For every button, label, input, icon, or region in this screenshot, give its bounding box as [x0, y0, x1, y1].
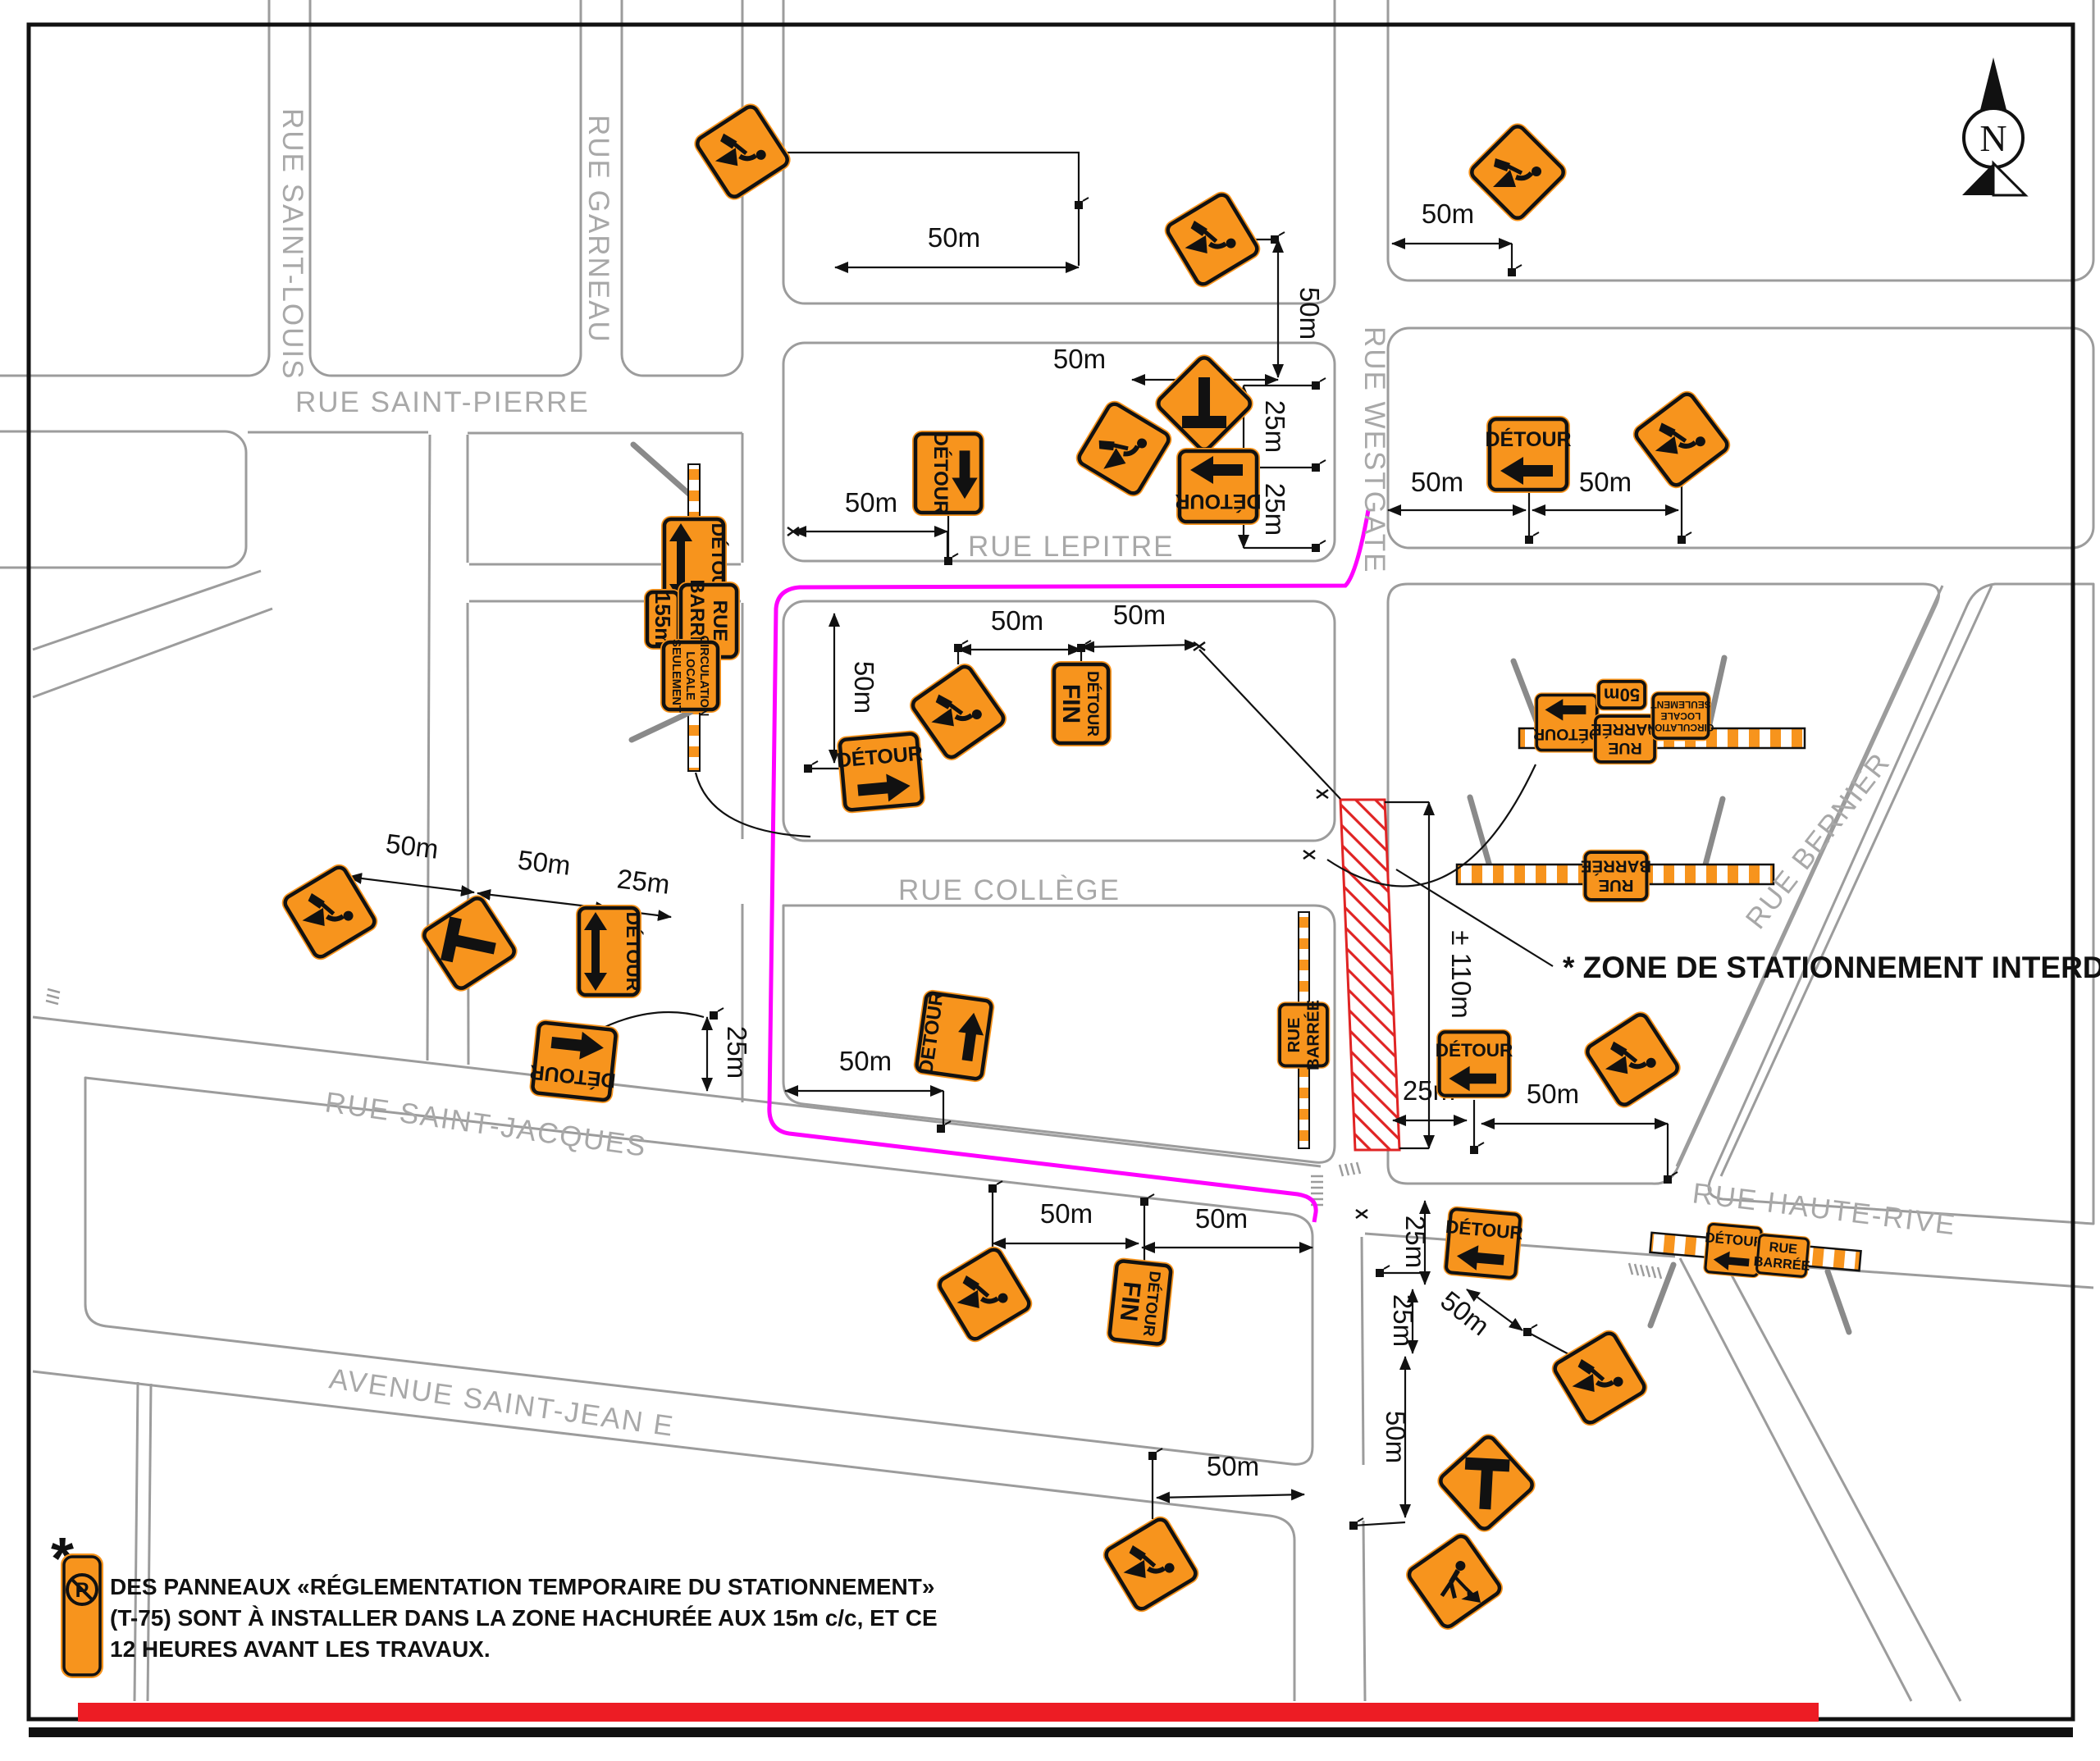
sign-digger [1622, 380, 1742, 500]
sign-label: DÉTOUR [623, 912, 645, 992]
sign-digger [1569, 997, 1696, 1123]
dimension-label: 25m [615, 863, 671, 900]
sign-label: LOCALE [1661, 710, 1701, 722]
dimension-label: 50m [1411, 467, 1463, 497]
sign-label: FIN [1115, 1280, 1146, 1323]
north-arrow-left-icon [1962, 163, 1993, 195]
dimension-label: 50m [839, 1046, 892, 1076]
sign-detour-down: DÉTOUR [912, 431, 984, 516]
north-arrow-right-icon [1993, 163, 2025, 195]
footer-black-bar [29, 1727, 2073, 1737]
street-edge [33, 571, 272, 697]
sign-label: BARRÉE [1581, 856, 1651, 875]
dimension: 50m [1142, 1203, 1312, 1248]
dimension-label: 50m [384, 828, 440, 865]
no-parking-zone-label: * ZONE DE STATIONNEMENT INTERDIT [1563, 951, 2100, 984]
legend: * P DES PANNEAUX «RÉGLEMENTATION TEMPORA… [51, 1526, 938, 1678]
sign-post-marker [1525, 532, 1539, 544]
dimension: 25m [1400, 1201, 1431, 1284]
survey-x-marker [1356, 1210, 1367, 1218]
street-label-saint-louis: RUE SAINT-LOUIS [276, 108, 308, 380]
barricade-brace [1705, 799, 1723, 868]
sign-rue-barree: RUEBARRÉE [1752, 1232, 1812, 1279]
sign-label: BARRÉE [1304, 1000, 1323, 1070]
dimension: 50m [1081, 600, 1198, 647]
sign-post-marker [1140, 1194, 1154, 1206]
sign-post-marker [1075, 198, 1089, 209]
dimension-label: 50m [991, 605, 1043, 636]
sign-digger [920, 1230, 1049, 1359]
sign-detour-fin: DÉTOURFIN [1051, 661, 1112, 746]
sign-tee [406, 880, 532, 1006]
sign-label: RUE [709, 600, 731, 642]
dimension: 50m [1157, 1451, 1304, 1498]
city-block [0, 431, 246, 568]
survey-x-marker [1317, 790, 1328, 798]
dimension: 50m [958, 605, 1081, 650]
no-parking-hatched-zone [1340, 800, 1399, 1150]
dimension-label: 25m [1260, 483, 1290, 536]
sign-circulation: CIRCULATIONLOCALESEULEMENT [660, 636, 721, 717]
dimension: 50m [477, 844, 609, 909]
diamond-plate [1402, 1529, 1507, 1634]
street-label-westgate: RUE WESTGATE [1358, 326, 1390, 573]
sign-label: LOCALE [683, 651, 696, 700]
sign-rue-barree: RUEBARRÉE [1581, 850, 1651, 903]
street-label-college: RUE COLLÈGE [898, 874, 1121, 906]
dimension: 50m [1053, 344, 1278, 380]
sign-label: DÉTOUR [1485, 427, 1571, 451]
legend-text-line3: 12 HEURES AVANT LES TRAVAUX. [110, 1636, 491, 1662]
sign-post-marker [1349, 1518, 1363, 1530]
sign-rue-barree: RUEBARRÉE [1277, 1000, 1331, 1070]
survey-x-marker [1303, 851, 1315, 859]
street-label-lepitre: RUE LEPITRE [968, 531, 1175, 563]
sign-digger [679, 89, 806, 215]
crosswalk-ticks [46, 989, 60, 1004]
sign-post-marker [1508, 265, 1522, 276]
sign-post-marker [1470, 1143, 1484, 1154]
sign-post-marker [944, 554, 958, 565]
street-label-bernier: RUE BERNIER [1740, 746, 1897, 935]
north-arrow: N [1962, 57, 2025, 195]
sign-post-marker [804, 761, 818, 773]
sign-label: DÉTOUR [1436, 1040, 1513, 1061]
sign-detour-up: DÉTOUR [912, 988, 996, 1083]
sign-digger [265, 847, 395, 977]
barricade-brace [633, 445, 691, 495]
crosswalk-ticks [1340, 1162, 1360, 1176]
sign-digger [1086, 1499, 1216, 1629]
sign-label: FIN [1057, 684, 1084, 723]
dimension-label: 50m [1435, 1285, 1495, 1342]
sign-dist: 50m [1596, 678, 1648, 710]
sign-post-marker [1523, 1325, 1537, 1336]
dimension: 50m [349, 828, 474, 892]
dimension: 50m [993, 1198, 1139, 1243]
dimension-label: 50m [1294, 287, 1325, 340]
detour-route-line [769, 510, 1368, 1222]
dimension-label: 50m [845, 487, 897, 518]
dimension: 50m [835, 222, 1079, 267]
sign-label: RUE [1608, 739, 1642, 757]
sign-plate [1407, 1534, 1503, 1630]
dimension-label: ± 110m [1446, 930, 1477, 1018]
dimension-label: 50m [1195, 1203, 1248, 1234]
city-block [783, 906, 1335, 1162]
footer-red-bar [78, 1703, 1819, 1722]
sign-worker [1393, 1520, 1517, 1644]
dimension-label: 25m [1260, 400, 1290, 453]
sign-rue-barree: RUEBARRÉE [1591, 714, 1659, 764]
city-block [310, 0, 581, 376]
sign-label: CIRCULATION [1648, 722, 1714, 733]
north-arrow-letter: N [1979, 117, 2006, 159]
dimension-label: 25m [722, 1026, 752, 1079]
dimension-label: 50m [1113, 600, 1166, 630]
dimension: 25m [707, 1017, 752, 1091]
crosswalk-ticks [1629, 1263, 1661, 1279]
sign-post-marker [1148, 1448, 1162, 1460]
sign-post-marker [1678, 532, 1691, 544]
traffic-control-plan: RUE SAINT-LOUIS RUE GARNEAU RUE SAINT-PI… [0, 0, 2100, 1761]
barricade-brace [1828, 1271, 1849, 1332]
barricades [632, 445, 1861, 1332]
sign-circulation: CIRCULATIONLOCALESEULEMENT [1648, 691, 1714, 741]
dimension-line [349, 877, 474, 892]
sign-post-marker [1376, 1266, 1390, 1277]
dimension-label: 25m [1388, 1294, 1418, 1347]
dimension: 50m [1381, 1357, 1411, 1517]
sign-label: DÉTOUR [1084, 671, 1102, 737]
legend-text-line2: (T-75) SONT À INSTALLER DANS LA ZONE HAC… [110, 1605, 938, 1631]
sign-post-marker [710, 1008, 724, 1020]
sign-post-marker [1271, 232, 1285, 244]
sign-post-marker [988, 1181, 1002, 1193]
dimension-label: 50m [1207, 1451, 1259, 1481]
dimension-label: 50m [1527, 1079, 1579, 1109]
sign-detour-h: DÉTOUR [527, 1019, 621, 1104]
sign-label: DÉTOUR [929, 432, 952, 515]
sign-post-marker [1312, 378, 1326, 390]
dimension-label: 50m [849, 661, 879, 714]
dimension-label: 50m [1422, 198, 1474, 229]
street-edge [1680, 1258, 1961, 1701]
dimension: 50m [1278, 240, 1325, 377]
dimension: 50m [1392, 198, 1512, 244]
sign-label: RUE [1285, 1017, 1303, 1052]
north-arrow-top-icon [1979, 57, 2007, 113]
dimension: 25m [1388, 1289, 1418, 1353]
sign-detour-h: DÉTOUR [1441, 1206, 1525, 1282]
sign-label: RUE [1769, 1239, 1798, 1257]
barricade-brace [632, 712, 691, 740]
street-label-saint-jean: AVENUE SAINT-JEAN E [327, 1362, 677, 1443]
sign-label: SEULEMENT [669, 639, 682, 713]
dimension-line [1081, 645, 1198, 647]
sign-detour-h: DÉTOUR [1485, 416, 1571, 493]
sign-detour-fin: DÉTOURFIN [1106, 1257, 1175, 1348]
dimension-label: 50m [928, 222, 980, 253]
plan-drawing: RUE SAINT-LOUIS RUE GARNEAU RUE SAINT-PI… [0, 0, 2100, 1761]
street-network [0, 0, 2093, 1701]
sign-label: CIRCULATION [697, 636, 710, 717]
street-label-saint-pierre: RUE SAINT-PIERRE [295, 386, 590, 418]
sign-label: 50m [1604, 684, 1640, 705]
sign-label: SEULEMENT [1650, 699, 1711, 710]
survey-x-marker [1194, 642, 1205, 650]
sign-digger [1464, 119, 1571, 226]
sign-detour-h: DÉTOUR [1175, 448, 1261, 525]
sign-label: DÉTOUR [1175, 490, 1261, 513]
sign-post-marker [1664, 1172, 1678, 1184]
sign-tee [1431, 1427, 1543, 1540]
sign-post-marker [1312, 541, 1326, 552]
street-edge [1362, 1237, 1365, 1701]
sign-label: DÉTOUR [1533, 725, 1600, 744]
sign-label: RUE [1598, 876, 1633, 894]
sign-detour-bidir: DÉTOUR [576, 905, 645, 998]
dimension-label: 50m [1053, 344, 1106, 374]
dimension-label: 50m [1579, 467, 1632, 497]
dimension-line [1157, 1494, 1304, 1498]
sign-digger [1535, 1313, 1664, 1443]
sign-detour-h: DÉTOUR [835, 730, 928, 814]
dimension-label: 50m [1381, 1411, 1411, 1463]
sign-detour-h: DÉTOUR [1533, 692, 1600, 752]
legend-text-line1: DES PANNEAUX «RÉGLEMENTATION TEMPORAIRE … [110, 1574, 934, 1599]
city-block [0, 0, 269, 376]
street-label-garneau: RUE GARNEAU [582, 115, 614, 344]
dimension-label: 50m [1040, 1198, 1093, 1229]
sign-label: 155m [651, 592, 675, 647]
sign-post-marker [1312, 460, 1326, 472]
dimension-label: 25m [1400, 1216, 1431, 1268]
dimension: 50m [1435, 1285, 1522, 1342]
sign-detour-h: DÉTOUR [1436, 1029, 1513, 1099]
dimension-label: 50m [516, 844, 572, 881]
street-edge [248, 432, 742, 433]
